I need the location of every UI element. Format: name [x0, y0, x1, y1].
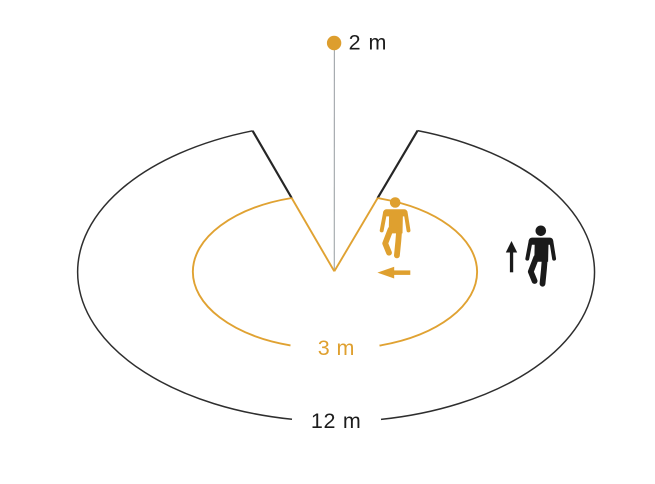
svg-text:3 m: 3 m — [318, 336, 355, 360]
svg-text:2 m: 2 m — [349, 30, 388, 54]
svg-text:12 m: 12 m — [311, 409, 362, 433]
